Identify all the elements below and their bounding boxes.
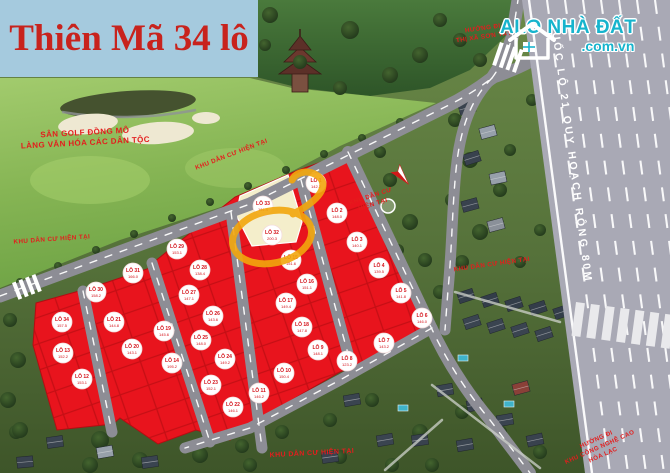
svg-text:LÔ 31: LÔ 31 — [126, 266, 140, 274]
sand-bunker — [192, 112, 220, 124]
plot-badge-lô-9: LÔ 9148.1 — [308, 340, 328, 360]
tree — [282, 166, 290, 174]
svg-text:LÔ 2: LÔ 2 — [331, 206, 342, 214]
page-title: Thiên Mã 34 lô — [9, 17, 249, 60]
plot-badge-lô-11: LÔ 11146.2 — [249, 383, 269, 403]
svg-text:LÔ 33: LÔ 33 — [256, 199, 270, 207]
plot-badge-lô-25: LÔ 25148.0 — [191, 330, 211, 350]
svg-text:146.0: 146.0 — [417, 319, 428, 324]
svg-text:149.2: 149.2 — [220, 360, 231, 365]
svg-text:LÔ 18: LÔ 18 — [295, 320, 309, 328]
tree — [259, 39, 271, 51]
svg-text:LÔ 19: LÔ 19 — [157, 324, 171, 332]
swimming-pool — [398, 405, 408, 411]
svg-text:143.1: 143.1 — [127, 350, 138, 355]
tree — [244, 182, 252, 190]
svg-text:149.4: 149.4 — [281, 304, 292, 309]
svg-text:151.1: 151.1 — [302, 285, 313, 290]
tree — [12, 422, 28, 438]
svg-text:152.2: 152.2 — [58, 354, 69, 359]
house — [17, 456, 34, 468]
tree — [168, 214, 176, 222]
svg-text:139.5: 139.5 — [374, 269, 385, 274]
plot-badge-lô-27: LÔ 27147.1 — [179, 285, 199, 305]
tree — [333, 81, 347, 95]
plot-badge-lô-3: LÔ 3140.1 — [347, 232, 367, 252]
svg-text:140.1: 140.1 — [352, 243, 363, 248]
tree — [206, 198, 214, 206]
tree — [418, 253, 432, 267]
svg-text:LÔ 17: LÔ 17 — [279, 296, 293, 304]
svg-text:143.2: 143.2 — [379, 344, 390, 349]
brand-logo: ALO NHÀ ĐẤT .com.vn — [506, 18, 666, 53]
tree — [243, 458, 257, 472]
swimming-pool — [504, 401, 514, 407]
tree — [504, 144, 516, 156]
svg-text:LÔ 24: LÔ 24 — [218, 352, 232, 360]
tree — [0, 392, 16, 408]
tree — [320, 150, 328, 158]
svg-text:LÔ 3: LÔ 3 — [351, 235, 362, 243]
svg-text:LÔ 8: LÔ 8 — [341, 354, 352, 362]
tree — [365, 393, 379, 407]
plot-badge-lô-4: LÔ 4139.5 — [369, 258, 389, 278]
svg-text:166.0: 166.0 — [128, 274, 139, 279]
plot-badge-lô-23: LÔ 23152.1 — [201, 375, 221, 395]
tree — [412, 47, 428, 63]
plot-badge-lô-31: LÔ 31166.0 — [123, 263, 143, 283]
svg-text:LÔ 6: LÔ 6 — [416, 311, 427, 319]
tree — [425, 458, 439, 472]
tree — [534, 224, 546, 236]
plot-badge-lô-16: LÔ 16151.1 — [297, 274, 317, 294]
svg-text:144.8: 144.8 — [109, 323, 120, 328]
svg-text:147.1: 147.1 — [184, 296, 195, 301]
svg-text:143.6: 143.6 — [208, 317, 219, 322]
plot-badge-lô-29: LÔ 29153.1 — [167, 239, 187, 259]
tree — [10, 352, 26, 368]
tree — [275, 425, 289, 439]
plot-badge-lô-7: LÔ 7143.2 — [374, 333, 394, 353]
svg-text:LÔ 7: LÔ 7 — [378, 336, 389, 344]
plot-badge-lô-30: LÔ 30158.2 — [86, 282, 106, 302]
svg-text:LÔ 23: LÔ 23 — [204, 378, 218, 386]
svg-text:LÔ 12: LÔ 12 — [75, 372, 89, 380]
svg-text:LÔ 34: LÔ 34 — [55, 315, 69, 323]
tree — [473, 53, 487, 67]
svg-text:146.2: 146.2 — [254, 394, 265, 399]
tree — [235, 439, 249, 453]
svg-text:LÔ 16: LÔ 16 — [300, 277, 314, 285]
svg-text:195.2: 195.2 — [167, 364, 178, 369]
plot-badge-lô-17: LÔ 17149.4 — [276, 293, 296, 313]
svg-text:153.1: 153.1 — [77, 380, 88, 385]
svg-text:LÔ 29: LÔ 29 — [170, 242, 184, 250]
plot-badge-lô-26: LÔ 26143.6 — [203, 306, 223, 326]
svg-text:148.1: 148.1 — [313, 351, 324, 356]
svg-text:152.1: 152.1 — [206, 386, 217, 391]
tree — [472, 224, 488, 240]
house — [46, 435, 63, 448]
svg-text:LÔ 26: LÔ 26 — [206, 309, 220, 317]
land-plot-map: QUỐC LỘ 21 QUY HOẠCH RỘNG 80M LÔ 1142.2L… — [0, 0, 670, 473]
plot-badge-lô-13: LÔ 13152.2 — [53, 343, 73, 363]
plot-badge-lô-10: LÔ 10150.4 — [274, 363, 294, 383]
svg-text:200.3: 200.3 — [267, 236, 278, 241]
svg-text:LÔ 30: LÔ 30 — [89, 285, 103, 293]
plot-badge-lô-2: LÔ 2148.0 — [327, 203, 347, 223]
svg-text:153.1: 153.1 — [172, 250, 183, 255]
plot-badge-lô-28: LÔ 28138.4 — [190, 260, 210, 280]
tree — [293, 55, 307, 69]
svg-text:LÔ 9: LÔ 9 — [312, 343, 323, 351]
tree — [402, 214, 418, 230]
swimming-pool — [458, 355, 468, 361]
plot-badge-lô-32: LÔ 32200.3 — [262, 225, 282, 245]
tree — [433, 13, 447, 27]
tree — [341, 21, 359, 39]
svg-text:157.5: 157.5 — [57, 323, 68, 328]
plot-badge-lô-8: LÔ 8123.2 — [337, 351, 357, 371]
tree — [493, 183, 507, 197]
svg-text:LÔ 13: LÔ 13 — [56, 346, 70, 354]
svg-text:141.8: 141.8 — [396, 294, 407, 299]
plot-badge-lô-14: LÔ 14195.2 — [162, 353, 182, 373]
svg-text:148.0: 148.0 — [196, 341, 207, 346]
tree — [130, 230, 138, 238]
plot-badge-lô-5: LÔ 5141.8 — [391, 283, 411, 303]
plot-badge-lô-34: LÔ 34157.5 — [52, 312, 72, 332]
svg-text:LÔ 14: LÔ 14 — [165, 356, 179, 364]
plot-badge-lô-12: LÔ 12153.1 — [72, 369, 92, 389]
plot-badge-lô-6: LÔ 6146.0 — [412, 308, 432, 328]
tree — [323, 413, 337, 427]
brand-domain: .com.vn — [581, 39, 634, 53]
svg-text:LÔ 21: LÔ 21 — [107, 315, 121, 323]
svg-text:150.4: 150.4 — [279, 374, 290, 379]
svg-text:LÔ 10: LÔ 10 — [277, 366, 291, 374]
svg-text:138.4: 138.4 — [195, 271, 206, 276]
house — [141, 455, 158, 468]
plot-badge-lô-22: LÔ 22146.1 — [223, 397, 243, 417]
svg-text:145.6: 145.6 — [159, 332, 170, 337]
svg-text:147.8: 147.8 — [297, 328, 308, 333]
plot-badge-lô-18: LÔ 18147.8 — [292, 317, 312, 337]
svg-text:146.1: 146.1 — [228, 408, 239, 413]
plot-badge-lô-20: LÔ 20143.1 — [122, 339, 142, 359]
svg-text:LÔ 20: LÔ 20 — [125, 342, 139, 350]
tree — [82, 457, 98, 473]
title-box: Thiên Mã 34 lô — [0, 0, 258, 77]
svg-text:LÔ 4: LÔ 4 — [373, 261, 384, 269]
svg-text:LÔ 27: LÔ 27 — [182, 288, 196, 296]
svg-text:LÔ 22: LÔ 22 — [226, 400, 240, 408]
tree — [262, 7, 278, 23]
svg-text:LÔ 32: LÔ 32 — [265, 228, 279, 236]
tree — [382, 67, 398, 83]
tree — [3, 313, 17, 327]
svg-text:LÔ 5: LÔ 5 — [395, 286, 406, 294]
svg-text:123.2: 123.2 — [342, 362, 353, 367]
plot-badge-lô-19: LÔ 19145.6 — [154, 321, 174, 341]
plot-badge-lô-24: LÔ 24149.2 — [215, 349, 235, 369]
tree — [533, 445, 547, 459]
svg-text:LÔ 11: LÔ 11 — [252, 386, 266, 394]
svg-text:158.2: 158.2 — [91, 293, 102, 298]
svg-text:LÔ 28: LÔ 28 — [193, 263, 207, 271]
svg-text:148.0: 148.0 — [332, 214, 343, 219]
svg-text:LÔ 25: LÔ 25 — [194, 333, 208, 341]
plot-badge-lô-21: LÔ 21144.8 — [104, 312, 124, 332]
